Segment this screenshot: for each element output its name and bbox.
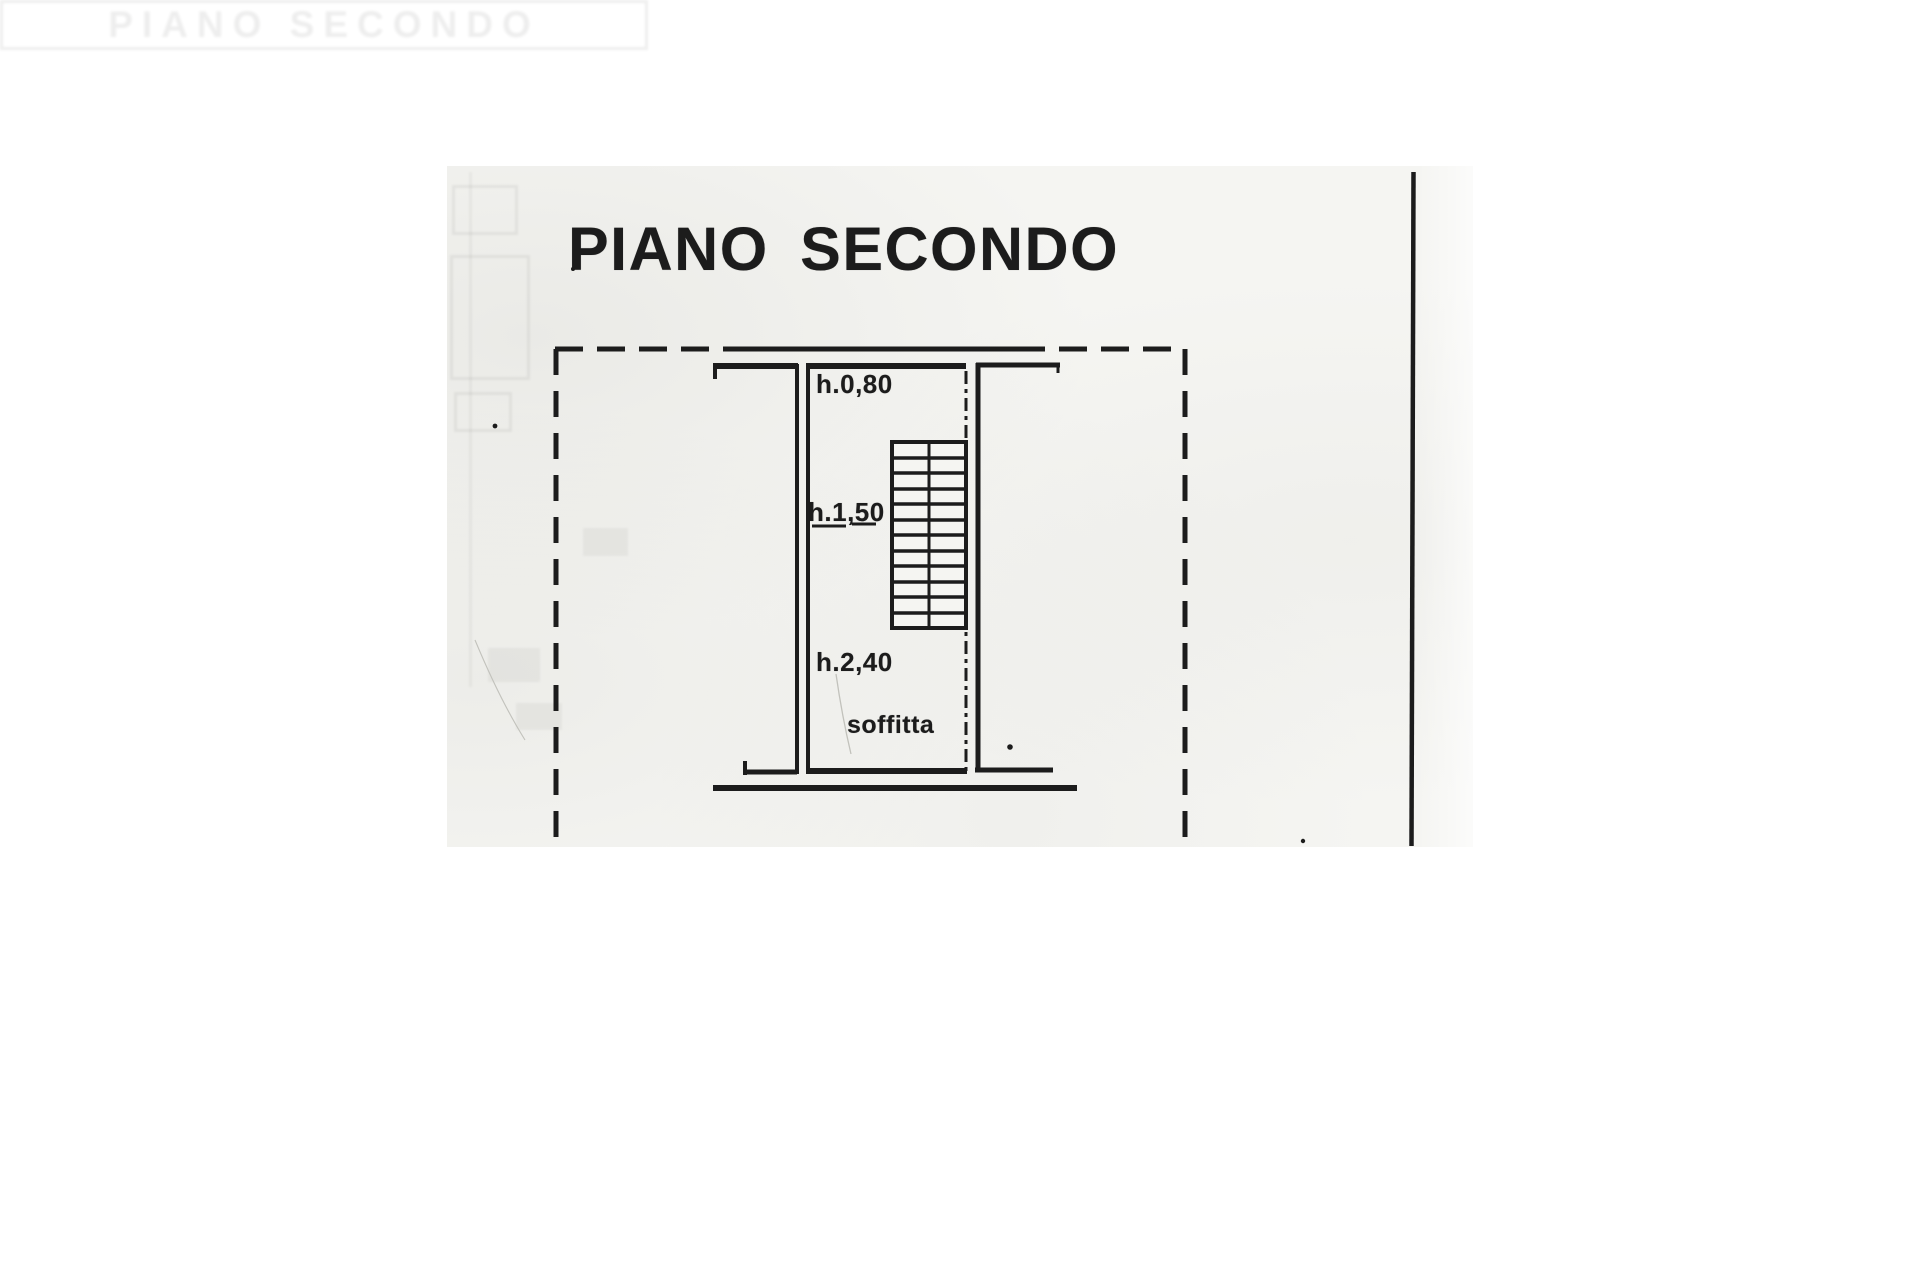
- scanned-page: PIANO SECONDO: [0, 0, 1920, 1280]
- height-label-080: h.0,80: [816, 369, 893, 400]
- scan-edge-fade: [1417, 166, 1473, 847]
- height-label-240: h.2,40: [816, 647, 893, 678]
- staircase: [892, 442, 966, 628]
- page-fold-line: [1412, 172, 1414, 846]
- height-label-150: h.1,50: [808, 497, 885, 528]
- room-label-soffitta: soffitta: [847, 711, 934, 740]
- page-title: PIANO SECONDO: [568, 214, 1119, 284]
- floor-plan-drawing: [0, 0, 1920, 1280]
